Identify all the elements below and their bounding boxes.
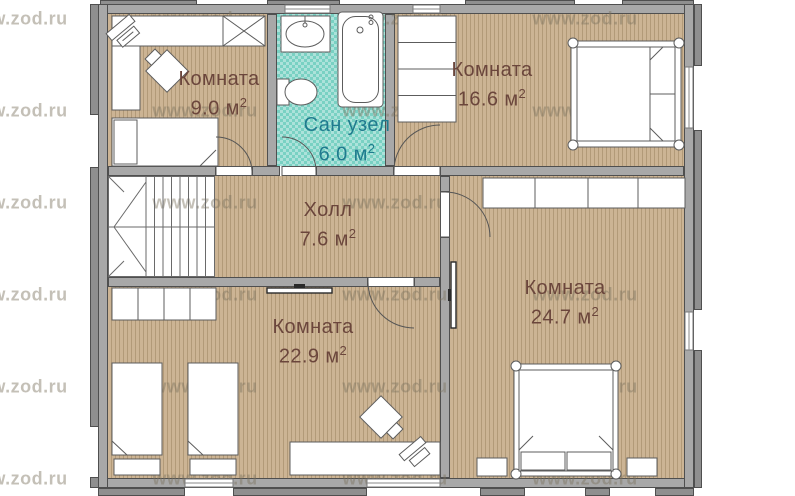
area-sup: 2	[240, 95, 248, 110]
room-name: Комната	[134, 68, 304, 91]
area-value: 24.7	[531, 307, 572, 329]
area-sup: 2	[340, 343, 348, 358]
double-bed	[568, 38, 684, 150]
nightstand	[477, 458, 507, 476]
area-unit: м	[504, 89, 518, 111]
room-label-22-9: Комната 22.9 м2	[228, 316, 398, 369]
door	[216, 137, 252, 176]
room-label-24-7: Комната 24.7 м2	[480, 277, 650, 330]
room-area: 6.0 м2	[262, 137, 432, 167]
tv	[267, 284, 332, 293]
room-name: Холл	[243, 199, 413, 222]
wardrobe	[483, 178, 685, 208]
room-area: 22.9 м2	[228, 339, 398, 369]
area-sup: 2	[349, 226, 357, 241]
area-value: 9.0	[191, 98, 220, 120]
area-unit: м	[226, 98, 240, 120]
area-unit: м	[335, 229, 349, 251]
room-label-16-6: Комната 16.6 м2	[407, 59, 577, 112]
area-unit: м	[577, 307, 591, 329]
room-name: Комната	[228, 316, 398, 339]
room-area: 24.7 м2	[480, 300, 650, 330]
single-bed	[112, 118, 218, 166]
area-value: 6.0	[319, 144, 348, 166]
wardrobe	[223, 16, 265, 46]
chair	[360, 396, 409, 445]
single-bed	[112, 363, 162, 475]
nightstand	[627, 458, 657, 476]
area-sup: 2	[519, 86, 527, 101]
area-value: 7.6	[300, 229, 329, 251]
room-label-bathroom: Сан узел 6.0 м2	[262, 114, 432, 167]
area-value: 16.6	[458, 89, 499, 111]
room-area: 16.6 м2	[407, 82, 577, 112]
room-name: Комната	[407, 59, 577, 82]
room-label-hall: Холл 7.6 м2	[243, 199, 413, 252]
area-unit: м	[354, 144, 368, 166]
room-name: Комната	[480, 277, 650, 300]
floor-plan: www.zod.ruwww.zod.ruwww.zod.ruwww.zod.ru…	[0, 0, 795, 496]
sink	[281, 16, 330, 52]
area-value: 22.9	[279, 346, 320, 368]
room-area: 7.6 м2	[243, 222, 413, 252]
area-unit: м	[325, 346, 339, 368]
tv	[448, 262, 456, 328]
bathtub	[338, 12, 383, 107]
wardrobe	[112, 288, 216, 320]
staircase	[108, 176, 215, 277]
area-sup: 2	[368, 141, 376, 156]
double-bed	[511, 361, 621, 479]
single-bed	[188, 363, 238, 475]
room-label-9: Комната 9.0 м2	[134, 68, 304, 121]
room-name: Сан узел	[262, 114, 432, 137]
area-sup: 2	[592, 304, 600, 319]
